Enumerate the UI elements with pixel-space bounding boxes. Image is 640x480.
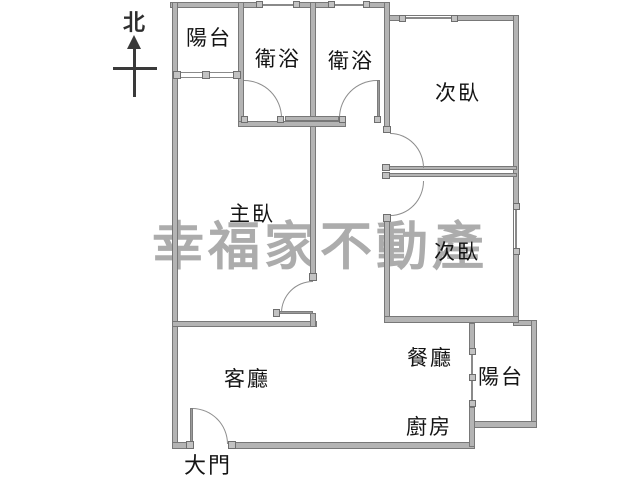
slider-tl-jamb-1 xyxy=(173,71,181,79)
door-arc-bedroom-top xyxy=(390,133,424,168)
floor-plan: 幸福家不動產 xyxy=(0,0,640,480)
wall-bath-divider xyxy=(310,2,316,281)
slider-br-jamb-2 xyxy=(469,374,476,381)
wall-master-bottom xyxy=(172,321,317,327)
door-jamb-bath1-r xyxy=(277,116,284,123)
room-label-entrance: 大門 xyxy=(184,448,232,480)
door-arc-entrance xyxy=(192,408,228,444)
room-label-balcony-bottom: 陽台 xyxy=(478,361,524,391)
room-label-master-bedroom: 主臥 xyxy=(229,198,275,228)
room-label-dining-room: 餐廳 xyxy=(407,342,453,372)
door-jamb-master-leaf xyxy=(273,309,280,317)
door-jamb-divider-a xyxy=(382,164,390,171)
north-arrow-crossbar xyxy=(113,67,157,70)
wall-master-door-hinge xyxy=(310,313,316,327)
door-arc-bath1 xyxy=(244,80,282,118)
room-label-living-room: 客廳 xyxy=(224,363,270,393)
door-jamb-bath2-l xyxy=(339,116,346,123)
window-bedroom-right-line xyxy=(515,210,517,248)
slider-br-line-1 xyxy=(471,355,473,374)
window-bath2-cap-r xyxy=(363,1,370,8)
door-leaf-bath2 xyxy=(377,80,380,118)
wall-bottom-main xyxy=(228,442,475,449)
room-label-bedroom-top: 次臥 xyxy=(435,77,481,107)
wall-baths-bottom xyxy=(238,121,346,127)
door-arc-master xyxy=(281,281,313,313)
door-jamb-bath1-l xyxy=(241,116,248,123)
wall-balcony-br-right xyxy=(531,320,537,428)
door-jamb-bedroom-right xyxy=(383,214,391,222)
window-bedroom-top-cap-l xyxy=(399,15,406,22)
window-bedroom-top-line xyxy=(406,17,451,19)
door-leaf-master xyxy=(277,311,313,314)
wall-left xyxy=(172,2,178,449)
wall-balcony-br-bottom xyxy=(469,421,537,428)
room-label-bath-2: 衛浴 xyxy=(328,45,374,75)
slider-tl-pane-2 xyxy=(210,72,233,78)
slider-br-jamb-1 xyxy=(469,348,476,355)
wall-right xyxy=(513,15,519,326)
room-label-bath-1: 衛浴 xyxy=(255,43,301,73)
door-jamb-hall-end xyxy=(309,273,317,281)
slider-tl-pane-1 xyxy=(181,72,202,78)
window-bath2-line xyxy=(335,4,363,6)
slider-br-line-2 xyxy=(471,381,473,400)
window-bedroom-right-cap-t xyxy=(513,203,520,210)
wall-bedrooms-bottom xyxy=(384,316,519,323)
wall-bedroom-west-lower xyxy=(384,216,390,323)
window-bedroom-top-cap-r xyxy=(451,15,458,22)
door-leaf-entrance xyxy=(190,408,193,443)
wall-baths-bottom-upper xyxy=(285,116,339,121)
window-bath1-cap-r xyxy=(293,1,300,8)
wall-bedroom-west-upper xyxy=(384,2,390,133)
north-compass: 北 xyxy=(105,8,165,103)
door-jamb-bath2-r xyxy=(374,116,381,123)
north-label: 北 xyxy=(123,5,145,37)
door-jamb-bedroom-top xyxy=(383,126,391,133)
wall-dining-east-lower xyxy=(469,407,475,447)
door-jamb-divider-b xyxy=(382,172,390,179)
room-label-balcony-top: 陽台 xyxy=(186,22,232,52)
door-arc-bath2 xyxy=(339,80,377,118)
window-bedroom-right-cap-b xyxy=(513,248,520,255)
wall-dining-east-upper xyxy=(469,323,475,350)
room-label-bedroom-right: 次臥 xyxy=(434,236,480,266)
wall-bedroom-divider-b xyxy=(384,173,517,177)
slider-tl-jamb-2 xyxy=(202,71,210,79)
window-bath1-cap-l xyxy=(256,1,263,8)
slider-br-jamb-3 xyxy=(469,400,476,407)
window-bath1-line xyxy=(263,4,293,6)
slider-tl-jamb-3 xyxy=(233,71,241,79)
window-bath2-cap-l xyxy=(328,1,335,8)
room-label-kitchen: 廚房 xyxy=(406,411,452,441)
